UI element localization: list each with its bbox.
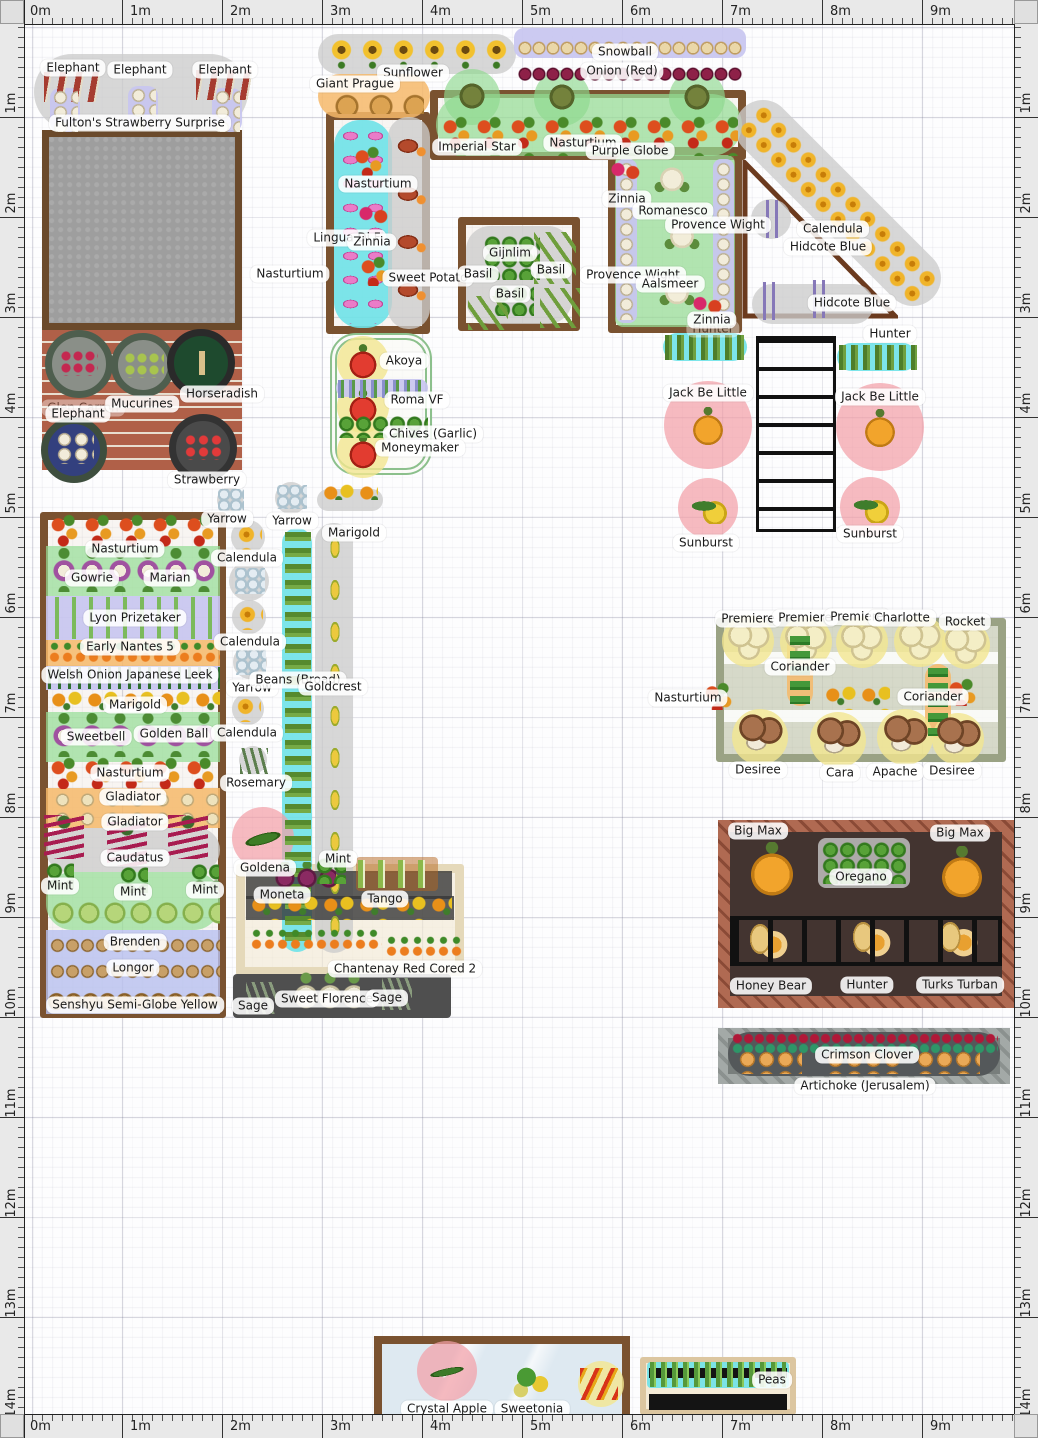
ruler-label: 3m: [330, 1419, 351, 1434]
plant-label[interactable]: Sage: [232, 998, 274, 1015]
ruler-label: 2m: [1019, 184, 1033, 222]
ruler-label: 2m: [230, 1419, 251, 1434]
plant-label[interactable]: Senshyu Semi-Globe Yellow: [46, 997, 224, 1014]
plant-label[interactable]: Apache: [867, 764, 924, 781]
plant-label[interactable]: Calendula: [797, 221, 869, 238]
plant-label[interactable]: Turks Turban: [916, 977, 1004, 994]
plant-label[interactable]: Sage: [366, 990, 408, 1007]
plant-rosemary[interactable]: [240, 748, 268, 774]
plant-chilli[interactable]: [580, 1368, 618, 1400]
plant-label[interactable]: Calendula: [211, 550, 283, 567]
ruler-label: 8m: [830, 1419, 851, 1434]
ruler-bottom-minor-ticks: [2, 1415, 1038, 1421]
plant-pumpkin[interactable]: [934, 846, 990, 900]
ruler-label: 5m: [4, 484, 18, 522]
ruler-corner-top-left: [0, 0, 24, 24]
plant-label[interactable]: Yarrow: [266, 513, 318, 530]
garden-planner: ElephantElephantElephantFulton's Strawbe…: [0, 0, 1038, 1438]
plant-label[interactable]: Gijnlim: [483, 245, 537, 262]
ruler-label: 5m: [1019, 484, 1033, 522]
plant-asparagus[interactable]: [540, 288, 580, 328]
plant-strawberry[interactable]: [184, 434, 222, 460]
plant-label[interactable]: Yarrow: [201, 511, 253, 528]
plant-label[interactable]: Early Nantes 5: [80, 639, 180, 656]
plant-label[interactable]: Hidcote Blue: [784, 239, 872, 256]
plant-label[interactable]: Nasturtium: [90, 765, 169, 782]
plant-label[interactable]: Rosemary: [220, 775, 292, 792]
plant-label[interactable]: Zinnia: [347, 234, 396, 251]
plant-potato-w[interactable]: [840, 621, 884, 661]
plant-artichoke[interactable]: [679, 80, 715, 114]
plant-marigold[interactable]: [822, 684, 890, 710]
ruler-label: 4m: [430, 1419, 451, 1434]
plant-tuber[interactable]: [916, 1050, 980, 1074]
plant-label[interactable]: Gladiator: [99, 789, 166, 806]
plant-amaranth[interactable]: [44, 815, 84, 859]
plant-label[interactable]: Aalsmeer: [636, 276, 705, 293]
ruler-label: 13m: [1019, 1284, 1033, 1322]
plant-zinnia[interactable]: [604, 156, 644, 186]
ruler-label: 1m: [130, 4, 151, 19]
ruler-label: 1m: [130, 1419, 151, 1434]
plant-label[interactable]: Elephant: [45, 406, 110, 423]
plant-label[interactable]: Jack Be Little: [835, 389, 925, 406]
plant-potato-b[interactable]: [882, 713, 928, 757]
plant-label[interactable]: Chantenay Red Cored 2: [328, 961, 482, 978]
plant-label[interactable]: Artichoke (Jerusalem): [794, 1078, 935, 1095]
ruler-label: 7m: [4, 684, 18, 722]
ruler-label: 1m: [4, 84, 18, 122]
ruler-corner-top-right: [1014, 0, 1038, 24]
ruler-label: 10m: [4, 984, 18, 1022]
plant-label[interactable]: Elephant: [40, 60, 105, 77]
plant-label[interactable]: Coriander: [898, 689, 969, 706]
plant-horseradish[interactable]: [196, 348, 208, 378]
plant-lavender[interactable]: [760, 282, 778, 320]
plant-label[interactable]: Gowrie: [65, 570, 119, 587]
ruler-left-major-ticks: [0, 17, 24, 1438]
plant-pepper[interactable]: [508, 1362, 554, 1400]
plant-gooseberry[interactable]: [124, 352, 164, 378]
ruler-label: 3m: [330, 4, 351, 19]
ruler-label: 5m: [530, 4, 551, 19]
plant-label[interactable]: Mint: [41, 878, 79, 895]
ruler-label: 6m: [1019, 584, 1033, 622]
plant-label[interactable]: Tango: [361, 891, 408, 908]
plant-label[interactable]: Horseradish: [180, 386, 264, 403]
zone-black: [649, 1394, 787, 1410]
plant-calendula-f[interactable]: [235, 696, 261, 722]
plant-pumpkin[interactable]: [859, 409, 901, 449]
plant-label[interactable]: Marian: [144, 570, 197, 587]
plant-label[interactable]: Crimson Clover: [815, 1047, 919, 1064]
plant-label[interactable]: Coriander: [765, 659, 836, 676]
ruler-label: 4m: [4, 384, 18, 422]
plant-label[interactable]: Welsh Onion Japanese Leek: [41, 667, 218, 684]
ruler-label: 2m: [230, 4, 251, 19]
trellis-ladder-vertical[interactable]: [756, 336, 836, 532]
plant-label[interactable]: Fulton's Strawberry Surprise: [49, 115, 231, 132]
ruler-corner-bottom-left: [0, 1414, 24, 1438]
ruler-left: 1m2m3m4m5m6m7m8m9m10m11m12m13m14m: [0, 0, 25, 1438]
plant-label[interactable]: Sunburst: [673, 535, 739, 552]
trellis-ladder-horizontal[interactable]: [730, 916, 1002, 966]
plant-label[interactable]: Caudatus: [101, 850, 170, 867]
plant-calendula-f[interactable]: [237, 604, 263, 630]
ruler-label: 9m: [1019, 884, 1033, 922]
plant-label[interactable]: Nasturtium: [648, 690, 727, 707]
plant-label[interactable]: Marigold: [103, 697, 167, 714]
ruler-label: 6m: [630, 1419, 651, 1434]
plant-label[interactable]: Mucurines: [105, 396, 179, 413]
plant-label[interactable]: Basil: [490, 286, 531, 303]
plant-pumpkin[interactable]: [687, 407, 729, 447]
plant-pumpkin[interactable]: [742, 842, 802, 898]
ruler-label: 8m: [1019, 784, 1033, 822]
plant-label[interactable]: Basil: [458, 266, 499, 283]
ruler-label: 11m: [1019, 1084, 1033, 1122]
plant-raspberry[interactable]: [60, 350, 98, 376]
plant-label[interactable]: Elephant: [192, 62, 257, 79]
ruler-label: 3m: [1019, 284, 1033, 322]
plant-yarrow[interactable]: [277, 485, 307, 509]
plant-label[interactable]: Desiree: [729, 762, 787, 779]
plant-nasturtium[interactable]: [352, 146, 386, 176]
plant-label[interactable]: Akoya: [380, 353, 429, 370]
ruler-label: 7m: [730, 4, 751, 19]
plant-cauliflower[interactable]: [654, 164, 690, 196]
plant-label[interactable]: Brenden: [104, 934, 167, 951]
plant-potato-b[interactable]: [815, 715, 861, 759]
ruler-right: 1m2m3m4m5m6m7m8m9m10m11m12m13m14m: [1014, 0, 1038, 1438]
plant-sweetpotato[interactable]: [390, 122, 430, 324]
ruler-label: 7m: [730, 1419, 751, 1434]
plant-artichoke[interactable]: [454, 79, 490, 113]
ruler-label: 0m: [30, 1419, 51, 1434]
ruler-right-major-ticks: [1015, 17, 1038, 1438]
garden-canvas[interactable]: ElephantElephantElephantFulton's Strawbe…: [24, 24, 1014, 1414]
plant-label[interactable]: Charlotte: [868, 610, 936, 627]
plant-bean-row[interactable]: [839, 345, 917, 370]
ruler-label: 6m: [630, 4, 651, 19]
ruler-label: 8m: [830, 4, 851, 19]
plant-squash[interactable]: [850, 493, 892, 523]
plant-sprout[interactable]: [50, 898, 220, 930]
plant-label[interactable]: Purple Globe: [586, 143, 675, 160]
plant-calendula-f[interactable]: [236, 524, 262, 550]
plant-label[interactable]: Desiree: [923, 763, 981, 780]
ruler-label: 10m: [1019, 984, 1033, 1022]
plant-label[interactable]: Snowball: [592, 44, 658, 61]
plant-label[interactable]: Elephant: [107, 62, 172, 79]
plant-potato-b[interactable]: [737, 712, 783, 756]
plant-squash[interactable]: [688, 494, 730, 524]
plant-label[interactable]: Lyon Prizetaker: [83, 610, 186, 627]
ruler-label: 9m: [930, 4, 951, 19]
plant-label[interactable]: Oregano: [829, 869, 892, 886]
ruler-top: 0m1m2m3m4m5m6m7m8m9m: [0, 0, 1038, 25]
plant-label[interactable]: Imperial Star: [432, 139, 522, 156]
plant-label[interactable]: Hunter: [863, 326, 916, 343]
plant-label[interactable]: Cara: [820, 765, 860, 782]
ruler-label: 11m: [4, 1084, 18, 1122]
ruler-bottom: 0m1m2m3m4m5m6m7m8m9m: [0, 1414, 1038, 1438]
plant-label[interactable]: Mint: [114, 884, 152, 901]
ruler-corner-bottom-right: [1014, 1414, 1038, 1438]
plant-label[interactable]: Gladiator: [101, 814, 168, 831]
plant-label[interactable]: Big Max: [728, 823, 788, 840]
plant-label[interactable]: Peas: [752, 1372, 792, 1389]
plant-label[interactable]: Sunburst: [837, 526, 903, 543]
bed-gravel-square[interactable]: [42, 130, 242, 330]
plant-label[interactable]: Calendula: [214, 634, 286, 651]
plant-label[interactable]: Nasturtium: [338, 176, 417, 193]
plant-label[interactable]: Sweetbell: [61, 729, 132, 746]
plant-artichoke[interactable]: [544, 80, 580, 114]
plant-garlic-col[interactable]: [56, 432, 94, 464]
ruler-label: 12m: [4, 1184, 18, 1222]
plant-label[interactable]: Nasturtium: [85, 541, 164, 558]
ruler-label: 8m: [4, 784, 18, 822]
plant-bean-row[interactable]: [665, 335, 745, 360]
plant-label[interactable]: Golden Ball: [134, 726, 215, 743]
ruler-label: 9m: [4, 884, 18, 922]
ruler-label: 5m: [530, 1419, 551, 1434]
ruler-label: 3m: [4, 284, 18, 322]
plant-amaranth[interactable]: [168, 815, 208, 859]
ruler-left-minor-ticks: [18, 7, 24, 1438]
plant-label[interactable]: Premiere: [715, 611, 781, 628]
ruler-label: 9m: [930, 1419, 951, 1434]
plant-tuber[interactable]: [738, 1050, 802, 1074]
ruler-label: 12m: [1019, 1184, 1033, 1222]
ruler-top-minor-ticks: [2, 18, 1038, 24]
plant-potato-b[interactable]: [935, 715, 981, 759]
plant-tomato[interactable]: [345, 344, 381, 380]
plant-label[interactable]: Moneymaker: [375, 440, 465, 457]
ruler-label: 1m: [1019, 84, 1033, 122]
ruler-label: 7m: [1019, 684, 1033, 722]
plant-label[interactable]: Calendula: [211, 725, 283, 742]
plant-label[interactable]: Basil: [531, 262, 572, 279]
plant-label[interactable]: Mint: [319, 851, 357, 868]
plant-label[interactable]: Zinnia: [687, 312, 736, 329]
plant-label[interactable]: Roma VF: [384, 392, 449, 409]
plant-label[interactable]: Hunter: [840, 977, 893, 994]
plant-yarrow[interactable]: [218, 489, 244, 511]
plant-label[interactable]: Nasturtium: [250, 266, 329, 283]
plant-carrot[interactable]: [250, 926, 382, 954]
ruler-label: 2m: [4, 184, 18, 222]
plant-marigold[interactable]: [320, 482, 378, 500]
plant-label[interactable]: Big Max: [930, 825, 990, 842]
plant-yarrow[interactable]: [235, 568, 265, 594]
plant-label[interactable]: Goldena: [234, 860, 296, 877]
plant-label[interactable]: Honey Bear: [730, 978, 812, 995]
ruler-label: 6m: [4, 584, 18, 622]
plant-label[interactable]: Provence Wight: [665, 217, 771, 234]
plant-label[interactable]: Longor: [106, 960, 159, 977]
plant-label[interactable]: Rocket: [939, 614, 991, 631]
plant-label[interactable]: Moneta: [254, 887, 311, 904]
ruler-label: 4m: [1019, 384, 1033, 422]
plant-zinnia[interactable]: [352, 200, 392, 230]
plant-label[interactable]: Sweet Florence: [275, 991, 379, 1008]
plant-label[interactable]: Marigold: [322, 525, 386, 542]
plant-celery[interactable]: [358, 860, 436, 888]
plant-label[interactable]: Hidcote Blue: [808, 295, 896, 312]
plant-label[interactable]: Goldcrest: [298, 679, 367, 696]
plant-label[interactable]: Giant Prague: [310, 76, 400, 93]
ruler-label: 13m: [4, 1284, 18, 1322]
ruler-label: 0m: [30, 4, 51, 19]
plant-label[interactable]: Mint: [186, 882, 224, 899]
ruler-label: 4m: [430, 4, 451, 19]
plant-label[interactable]: Jack Be Little: [663, 385, 753, 402]
plant-label[interactable]: Onion (Red): [580, 63, 663, 80]
plant-carrot[interactable]: [385, 933, 463, 959]
plant-label[interactable]: Strawberry: [168, 472, 246, 489]
